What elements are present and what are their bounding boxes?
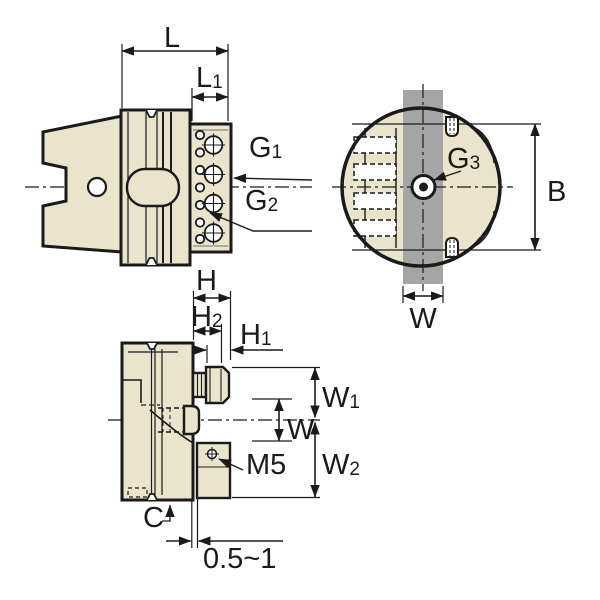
body bbox=[122, 343, 193, 500]
dim-label-H: H bbox=[196, 265, 217, 297]
mount-bolt bbox=[193, 367, 229, 403]
stop-block bbox=[197, 443, 230, 498]
dim-label-B: B bbox=[547, 176, 566, 208]
serration-slot bbox=[354, 164, 396, 180]
dim-label-gap: 0.5~1 bbox=[203, 543, 276, 575]
serration-slot bbox=[354, 220, 396, 236]
set-screw-bottom bbox=[446, 238, 458, 257]
drive-hole bbox=[88, 178, 106, 196]
center-hole-dot bbox=[419, 183, 428, 192]
dimension-drawing: L L1 G1 G2 bbox=[0, 0, 600, 600]
serration-slot bbox=[354, 193, 396, 209]
small-hole bbox=[196, 166, 204, 174]
small-hole bbox=[196, 218, 204, 226]
small-hole bbox=[196, 201, 204, 209]
dim-label-M5: M5 bbox=[246, 449, 286, 481]
dim-label-W-front: W bbox=[409, 303, 437, 335]
set-screw-top bbox=[446, 117, 458, 136]
dim-label-C: C bbox=[143, 502, 164, 534]
clamp-window bbox=[127, 169, 179, 206]
small-hole bbox=[196, 148, 204, 156]
small-hole bbox=[196, 235, 204, 243]
dim-label-L: L bbox=[164, 22, 180, 54]
serration-slot bbox=[354, 137, 396, 153]
dim-label-W-top: W bbox=[287, 414, 315, 446]
small-hole bbox=[196, 131, 204, 139]
small-hole bbox=[196, 183, 204, 191]
background bbox=[0, 0, 600, 600]
